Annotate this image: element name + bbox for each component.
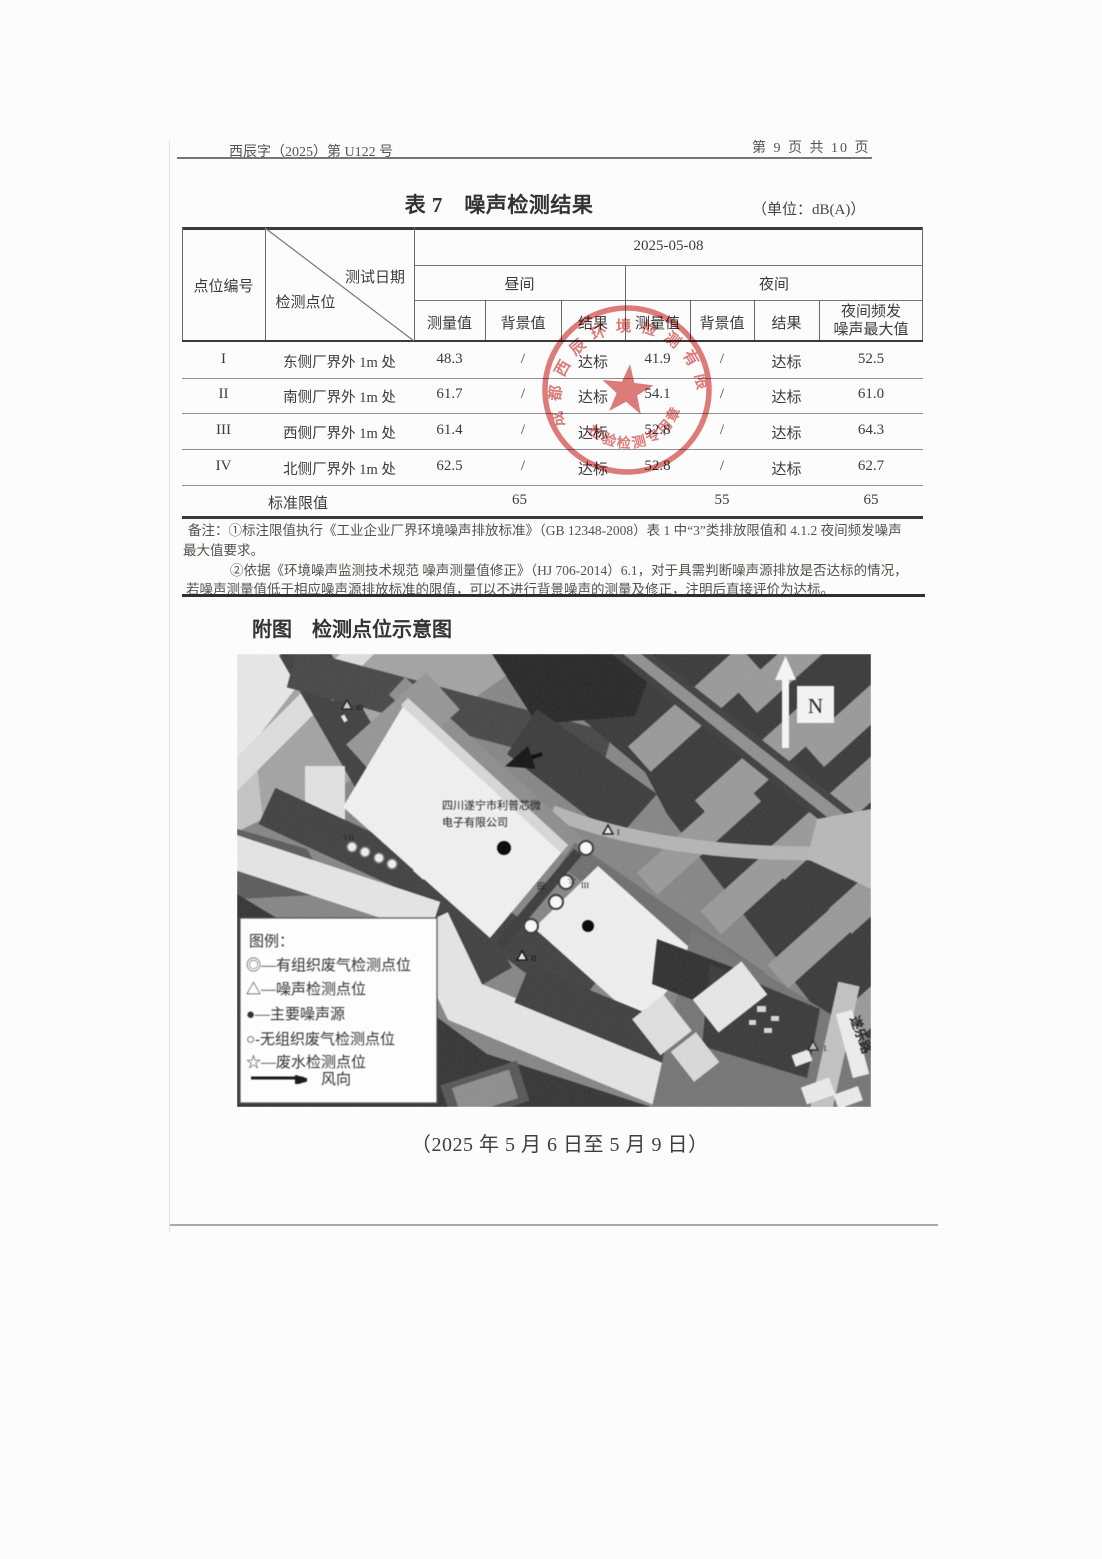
svg-text:II: II (531, 954, 537, 963)
svg-text:●—主要噪声源: ●—主要噪声源 (246, 1005, 345, 1023)
svg-text:成都西辰环境检测有限公司: 成都西辰环境检测有限公司 (532, 295, 715, 442)
svg-text:☆: ☆ (567, 875, 577, 887)
svg-text:N: N (808, 694, 823, 718)
svg-text:◎—有组织废气检测点位: ◎—有组织废气检测点位 (246, 957, 411, 974)
svg-text:III: III (581, 881, 589, 890)
svg-text:III: III (356, 703, 364, 712)
svg-text:VII: VII (343, 833, 354, 842)
svg-text:☆—废水检测点位: ☆—废水检测点位 (246, 1054, 366, 1071)
svg-text:I: I (617, 828, 620, 837)
svg-text:△—噪声检测点位: △—噪声检测点位 (246, 980, 366, 998)
svg-text:电子有限公司: 电子有限公司 (442, 815, 508, 829)
svg-text:图例：: 图例： (249, 933, 294, 950)
svg-text:四川遂宁市利普芯微: 四川遂宁市利普芯微 (442, 798, 541, 812)
svg-text:○-无组织废气检测点位: ○-无组织废气检测点位 (246, 1031, 395, 1048)
svg-text:田: 田 (537, 882, 545, 891)
svg-text:风向: 风向 (321, 1071, 351, 1088)
svg-text:1: 1 (823, 1044, 827, 1053)
